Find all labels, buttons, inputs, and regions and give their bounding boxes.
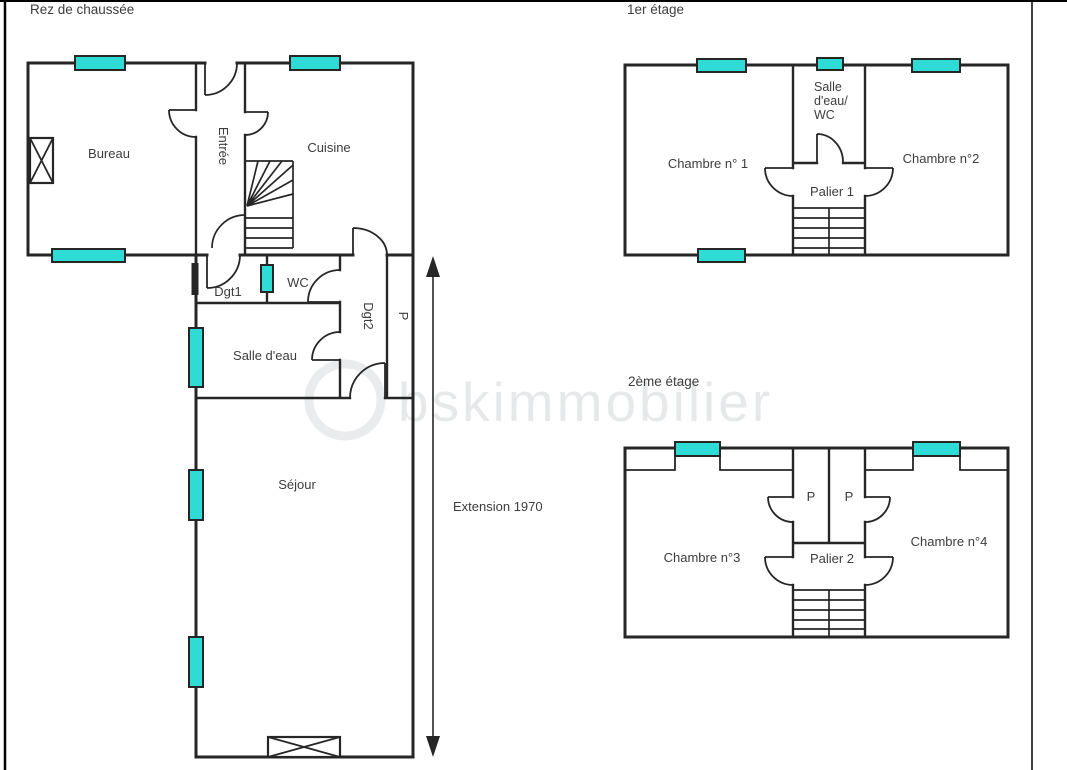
floor-title-first: 1er étage [627, 2, 684, 17]
room-label-entree: Entrée [216, 127, 231, 165]
arrow-up-icon [426, 256, 440, 277]
stairs-icon [212, 161, 293, 248]
window-icon-salle-deau-wc [817, 58, 843, 70]
room-label-chambre2: Chambre n°2 [903, 151, 980, 166]
window-icon-chambre1-bottom [698, 249, 745, 262]
door-arc-icon-placard-left [768, 497, 793, 522]
window-icon-chambre3 [675, 442, 720, 456]
extension-arrow: Extension 1970 [426, 256, 543, 757]
door-arc-icon-salle-deau-wc [817, 134, 843, 162]
room-label-dgt2: Dgt2 [361, 302, 376, 329]
room-label-placard-right: P [845, 489, 854, 504]
door-arc-icon-chambre1 [765, 168, 793, 196]
room-label-salle-deau-wc-line2: d'eau/ [814, 94, 848, 108]
door-arc-icon-chambre3 [765, 557, 793, 585]
ground-exterior-walls [28, 63, 413, 757]
arrow-down-icon [426, 736, 440, 757]
watermark: bskimmobilier [309, 364, 773, 436]
stairs-icon [793, 208, 865, 255]
window-icon-chambre2-top [912, 59, 960, 72]
door-arc-icon-bureau [169, 110, 196, 137]
door-arc-icon-salle-deau [312, 332, 340, 360]
room-label-chambre4: Chambre n°4 [911, 534, 988, 549]
door-arc-icon-chambre4 [865, 557, 893, 585]
chimney-icon [192, 263, 199, 295]
door-arc-icon-chambre2 [865, 168, 893, 196]
room-label-salle-deau-wc-line3: WC [814, 108, 835, 122]
ground-interior-walls [196, 63, 413, 398]
room-label-cuisine: Cuisine [307, 140, 350, 155]
stair-winder-treads [247, 161, 293, 206]
window-icon-sejour-upper [189, 470, 203, 520]
room-label-placard: P [396, 312, 411, 321]
door-arc-icon-cuisine [245, 112, 268, 135]
room-label-chambre3: Chambre n°3 [664, 550, 741, 565]
floorplan-page: bskimmobilier Rez de chaussée [0, 0, 1067, 770]
floor-title-second: 2ème étage [628, 374, 699, 389]
window-icon-bureau-top [75, 56, 125, 70]
watermark-text: bskimmobilier [398, 371, 773, 433]
door-arc-icon-wc [308, 270, 340, 302]
room-label-placard-left: P [807, 489, 816, 504]
door-arc-icon-cuisine-dgt2 [353, 228, 387, 255]
window-icon-bureau-bottom [52, 249, 125, 262]
room-label-bureau: Bureau [88, 146, 130, 161]
floorplan-drawing: bskimmobilier Rez de chaussée [0, 0, 1067, 770]
room-label-dgt1: Dgt1 [214, 284, 241, 299]
room-label-salle-deau: Salle d'eau [233, 348, 297, 363]
door-arc-icon-entrance [205, 63, 237, 95]
window-icon-sejour-lower [189, 637, 203, 687]
room-label-palier1: Palier 1 [810, 184, 854, 199]
floor-plan-first: 1er étage Chambre n° 1 Salle d'eau/ WC C… [625, 2, 1008, 262]
room-label-wc: WC [287, 275, 309, 290]
stair-straight-treads [245, 218, 293, 238]
room-label-chambre1: Chambre n° 1 [668, 156, 748, 171]
door-arc-icon-placard-right [865, 497, 890, 522]
window-icon-salle-deau [189, 328, 203, 387]
stair-treads [793, 590, 865, 637]
watermark-logo-icon [309, 364, 381, 436]
window-icon-chambre4 [913, 442, 960, 456]
stairs-icon [793, 590, 865, 637]
window-icon-chambre1-top [697, 59, 746, 72]
room-label-salle-deau-wc-line1: Salle [814, 80, 842, 94]
stair-treads [793, 208, 865, 255]
window-icon-cuisine-top [290, 56, 340, 70]
stair-rail-curve [212, 215, 245, 248]
window-icon-wc [261, 265, 273, 292]
extension-label: Extension 1970 [453, 499, 543, 514]
room-label-palier2: Palier 2 [810, 551, 854, 566]
second-knee-walls [625, 456, 1008, 470]
room-label-sejour: Séjour [278, 477, 316, 492]
floor-title-ground: Rez de chaussée [30, 2, 134, 17]
